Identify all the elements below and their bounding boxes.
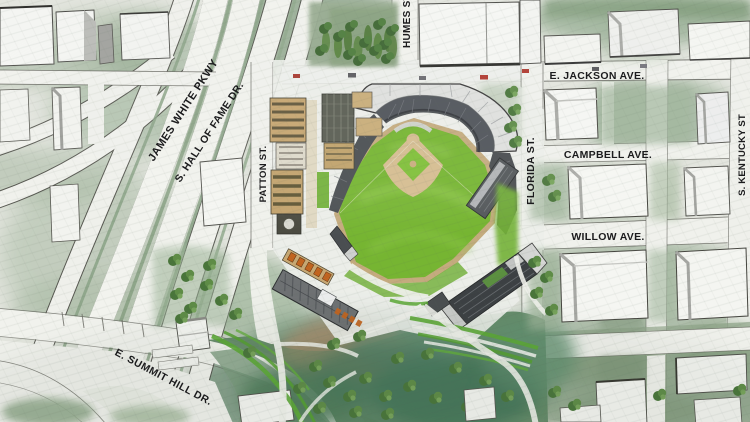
svg-text:E. JACKSON AVE.: E. JACKSON AVE. [550, 70, 645, 82]
svg-text:PATTON ST.: PATTON ST. [258, 146, 269, 203]
svg-text:HUMES ST.: HUMES ST. [402, 0, 413, 48]
svg-text:S. KENTUCKY ST: S. KENTUCKY ST [737, 114, 748, 196]
svg-text:WILLOW AVE.: WILLOW AVE. [571, 231, 644, 243]
svg-text:FLORIDA ST.: FLORIDA ST. [525, 137, 537, 205]
svg-text:CAMPBELL AVE.: CAMPBELL AVE. [564, 149, 652, 161]
